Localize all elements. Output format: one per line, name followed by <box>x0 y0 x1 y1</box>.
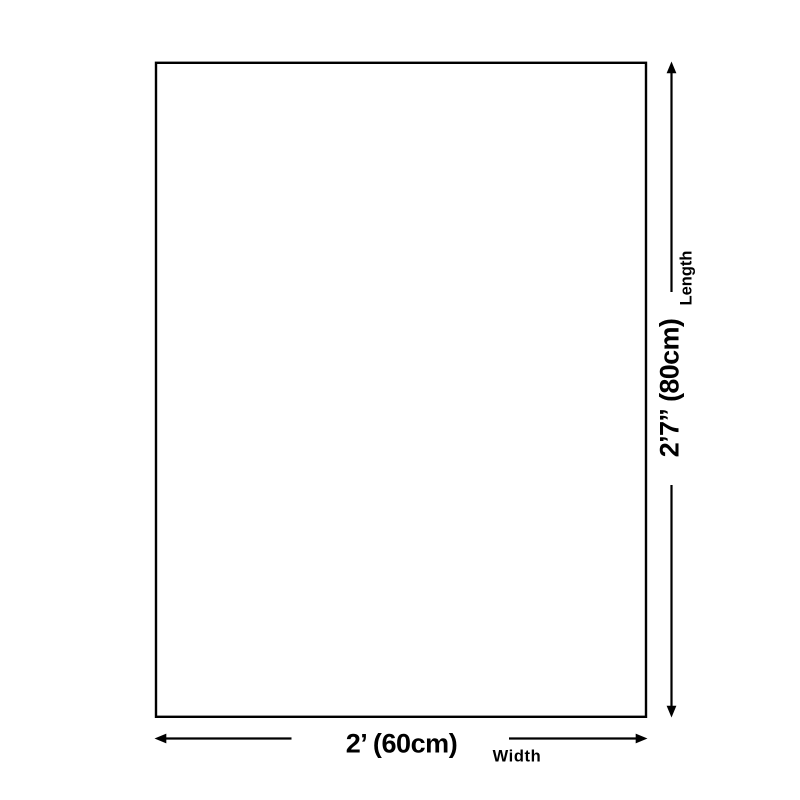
svg-text:Length: Length <box>678 251 696 306</box>
svg-text:2’ (60cm): 2’ (60cm) <box>346 728 458 758</box>
svg-text:Width: Width <box>493 747 542 765</box>
svg-text:2’7” (80cm): 2’7” (80cm) <box>655 319 685 457</box>
